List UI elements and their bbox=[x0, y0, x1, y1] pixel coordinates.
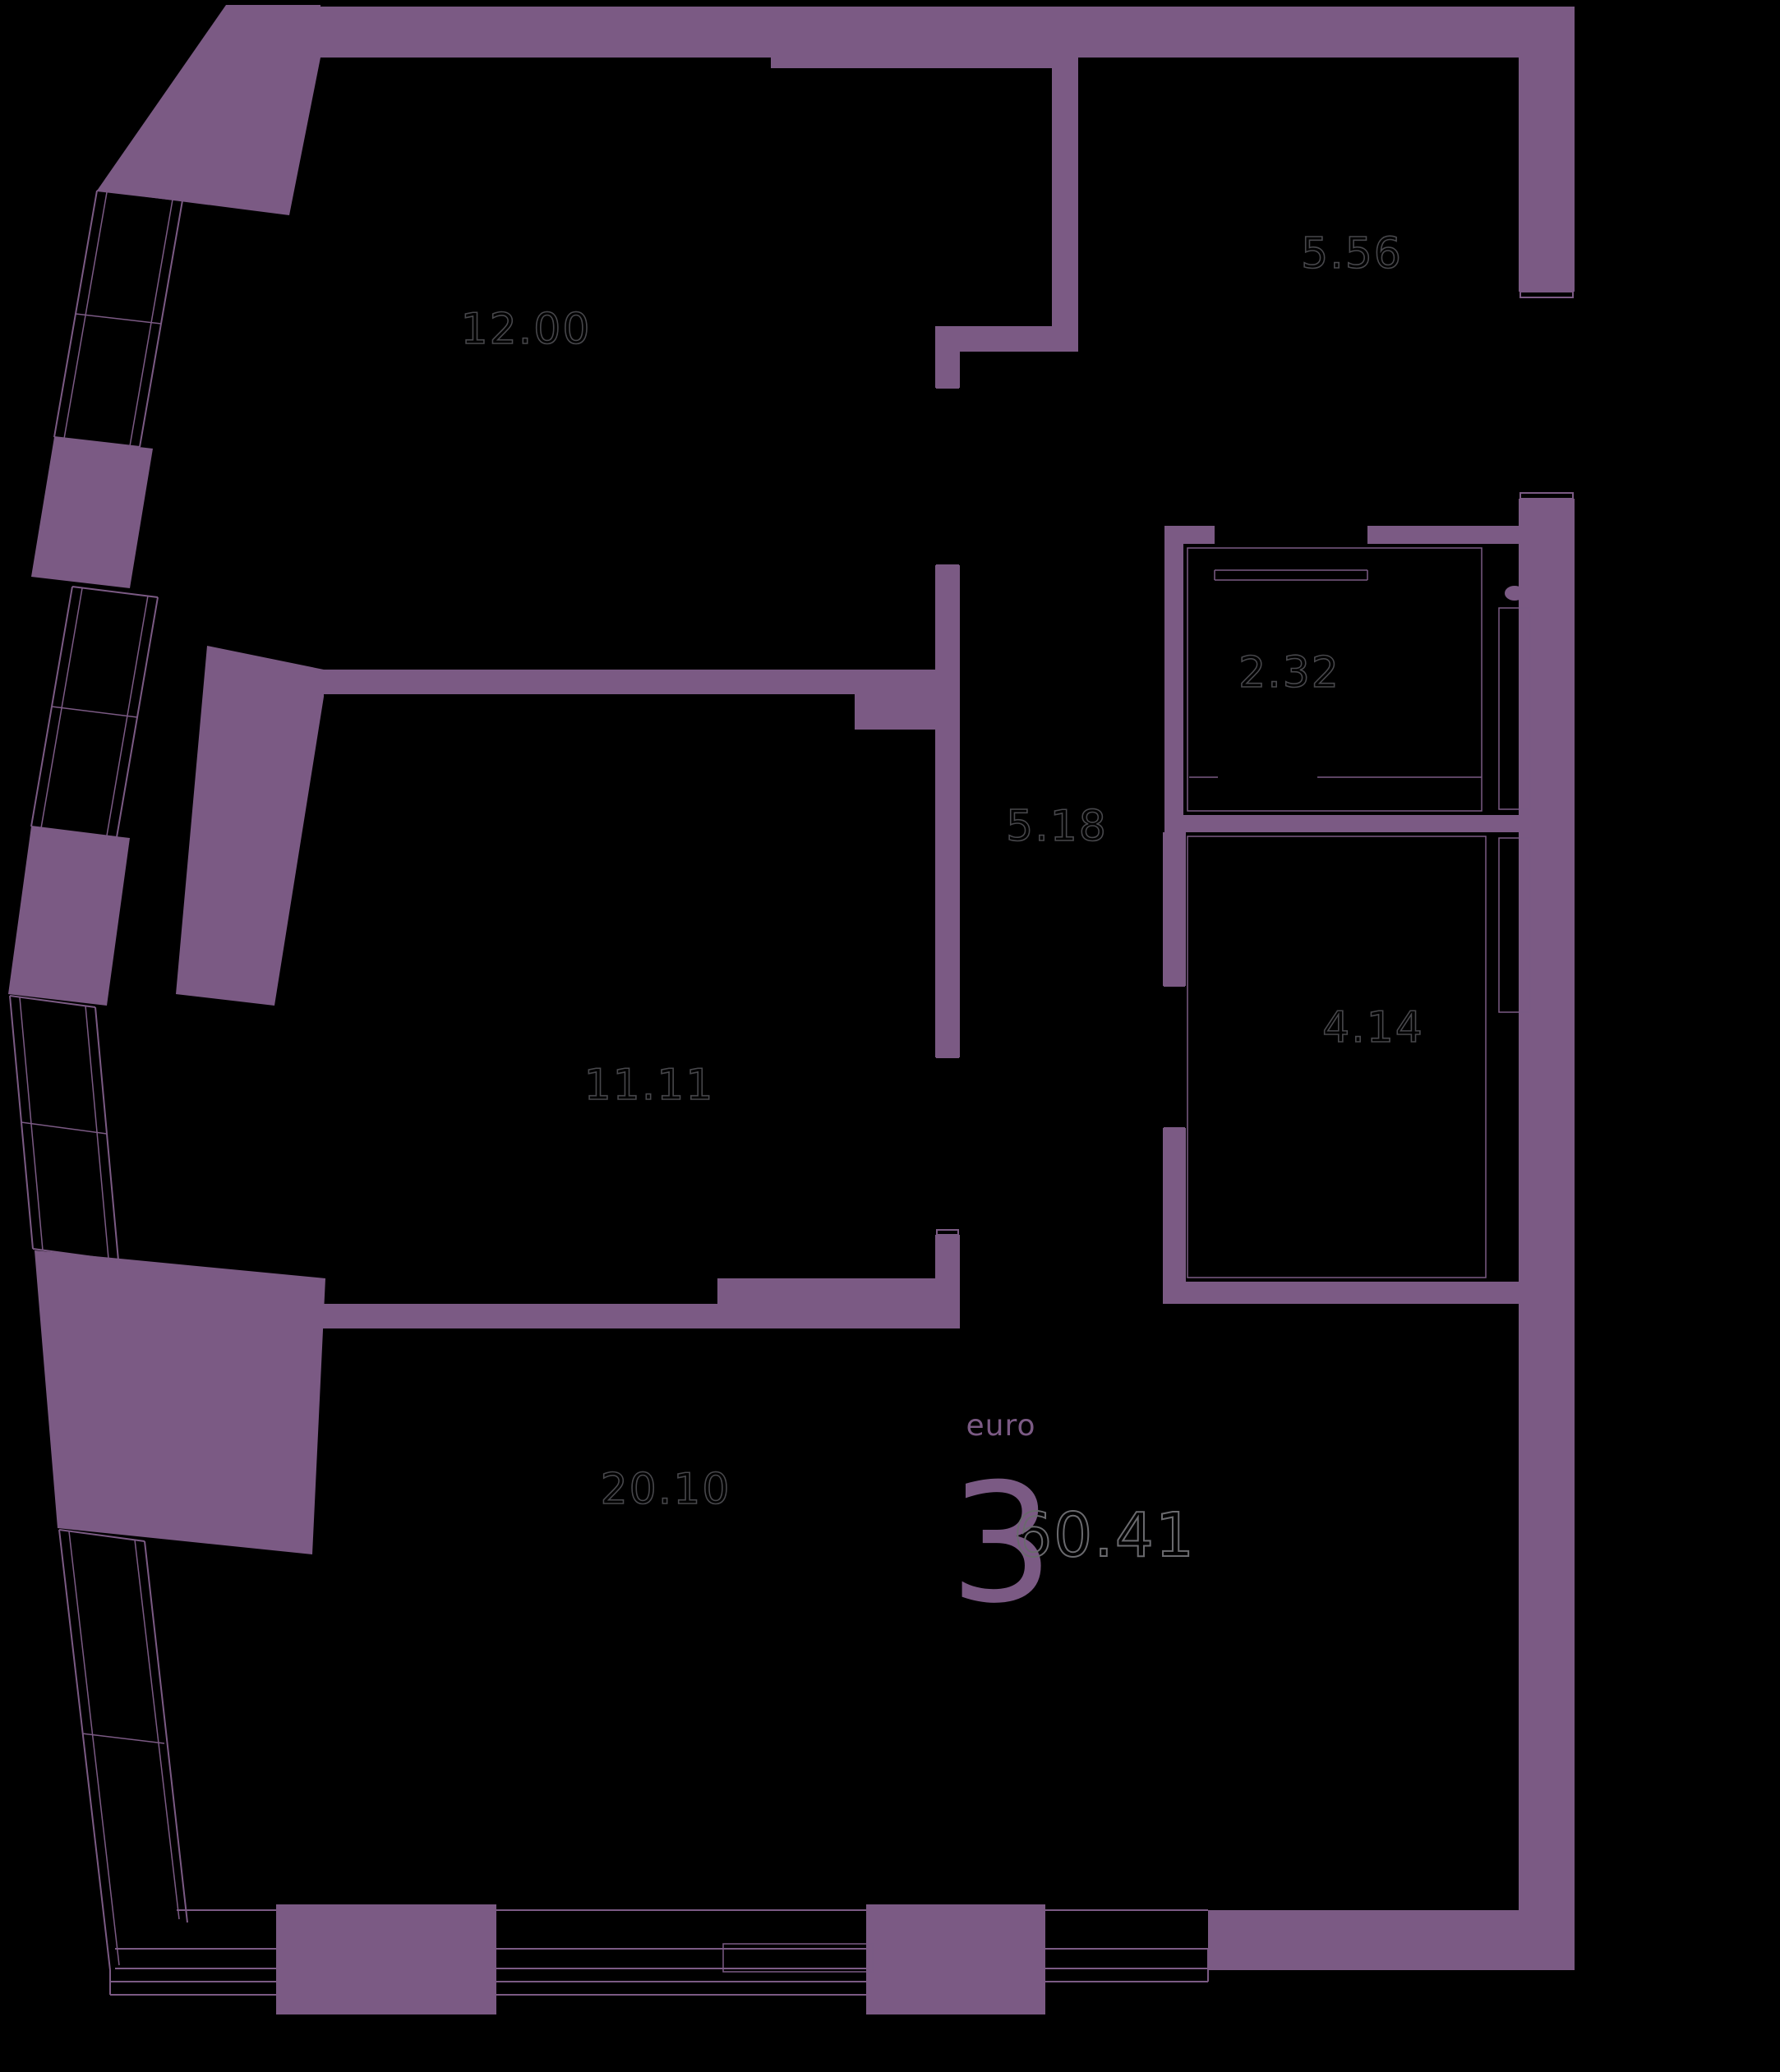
pier-interior-divider-1 bbox=[176, 646, 324, 1006]
room-area-label: 11.11 bbox=[584, 1061, 715, 1110]
door-pivot-dot bbox=[1505, 586, 1524, 601]
bathroom-bottom-wall bbox=[1163, 1282, 1519, 1304]
wall-12-556-vertical bbox=[1052, 58, 1078, 326]
room-area-label: 4.14 bbox=[1322, 1003, 1424, 1052]
wall-11-20-divider-thick bbox=[717, 1278, 960, 1328]
window-bay-2 bbox=[31, 587, 158, 837]
room-area-label: 20.10 bbox=[601, 1465, 731, 1514]
floor-plan-drawing: 12.00 5.56 2.32 5.18 4.14 11.11 20.10 eu… bbox=[0, 0, 1780, 2072]
pier-left-3 bbox=[8, 826, 130, 1006]
window-bay-1 bbox=[54, 191, 182, 447]
pier-top-left bbox=[97, 5, 320, 215]
floor-plan-canvas: 12.00 5.56 2.32 5.18 4.14 11.11 20.10 eu… bbox=[0, 0, 1780, 2072]
wardrobe-top-stub-left bbox=[1164, 526, 1215, 544]
entrance-jamb-bottom bbox=[1520, 493, 1573, 499]
wardrobe-west-wall bbox=[1164, 544, 1183, 815]
room-area-label: 12.00 bbox=[461, 305, 592, 354]
pier-left-2 bbox=[31, 437, 153, 588]
wall-12-11-divider bbox=[320, 670, 855, 694]
room-area-label: 2.32 bbox=[1238, 648, 1340, 698]
bathroom-west-wall-b bbox=[1163, 1128, 1186, 1282]
plan-total-area: 60.41 bbox=[1013, 1500, 1196, 1571]
plan-summary: euro 3 60.41 bbox=[949, 1409, 1196, 1640]
room-area-label: 5.18 bbox=[1006, 802, 1108, 851]
wall-bottom-solid bbox=[1208, 1910, 1575, 1970]
room-area-label: 5.56 bbox=[1301, 229, 1403, 279]
bathroom-inner-outline bbox=[1187, 836, 1486, 1278]
wardrobe-top-stub-right bbox=[1367, 526, 1519, 544]
wall-bottom-pier-2 bbox=[866, 1904, 1045, 2014]
wall-bottom-pier-1 bbox=[276, 1904, 496, 2014]
wall-jog bbox=[935, 326, 1078, 352]
corridor-west-wall-c bbox=[935, 1235, 960, 1282]
wall-11-20-divider bbox=[260, 1304, 717, 1328]
wall-right-upper bbox=[1519, 7, 1575, 292]
door-jamb bbox=[937, 1230, 958, 1235]
entrance-jamb-top bbox=[1520, 292, 1573, 297]
pier-interior-divider-2 bbox=[35, 1250, 325, 1554]
wall-12-11-divider-thick bbox=[855, 670, 960, 730]
wardrobe-bottom-wall bbox=[1164, 815, 1519, 832]
corridor-west-wall-b bbox=[935, 565, 960, 1057]
wall-top-thick-segment bbox=[771, 7, 1078, 68]
window-bay-4 bbox=[59, 1530, 187, 1970]
wall-right-lower bbox=[1519, 499, 1575, 1970]
bathroom-west-wall-a bbox=[1163, 832, 1186, 986]
plan-type-label: euro bbox=[966, 1409, 1036, 1443]
window-bay-3 bbox=[10, 996, 118, 1260]
